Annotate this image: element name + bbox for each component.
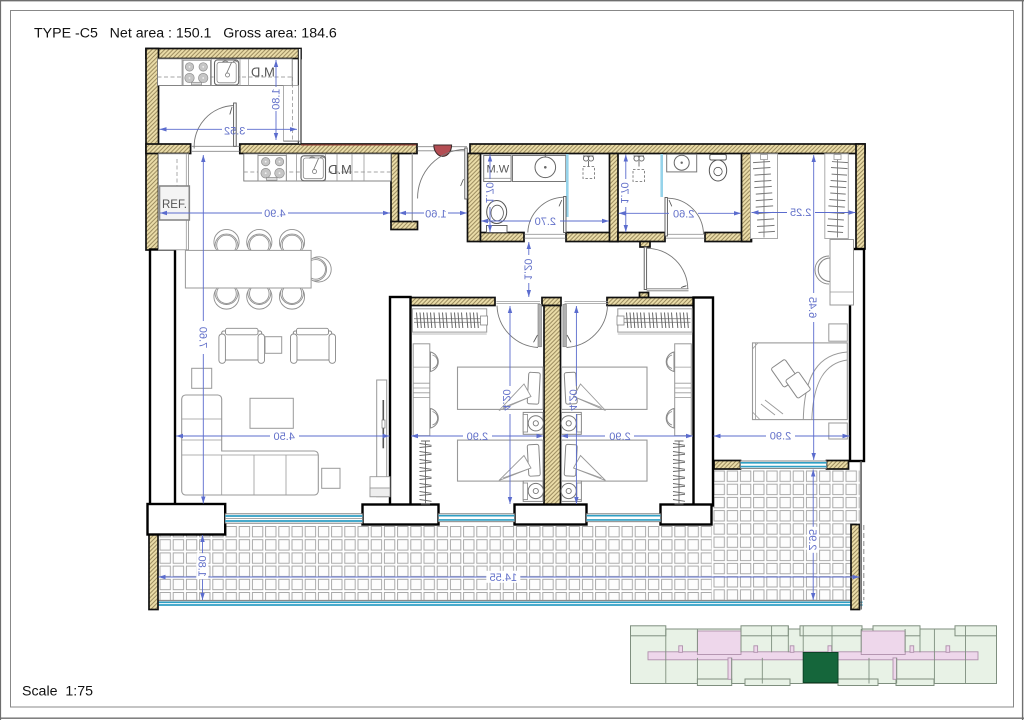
svg-text:4.20: 4.20 [566, 389, 578, 410]
svg-text:Scale 1:75: Scale 1:75 [22, 684, 93, 700]
svg-text:2.90: 2.90 [609, 431, 630, 443]
svg-text:14.55: 14.55 [490, 572, 518, 584]
svg-text:1.80: 1.80 [195, 555, 207, 576]
svg-text:4.50: 4.50 [273, 431, 294, 443]
svg-text:1.70: 1.70 [483, 182, 495, 203]
svg-text:1.60: 1.60 [425, 208, 446, 220]
svg-text:REF.: REF. [162, 199, 187, 211]
svg-text:M.D: M.D [328, 162, 352, 177]
svg-text:1.80: 1.80 [271, 88, 283, 109]
svg-text:4.90: 4.90 [264, 208, 285, 220]
svg-text:1.20: 1.20 [522, 259, 534, 280]
svg-text:2.70: 2.70 [535, 216, 556, 228]
svg-text:2.60: 2.60 [673, 209, 694, 221]
svg-text:6.45: 6.45 [806, 297, 818, 318]
svg-text:4.20: 4.20 [500, 389, 512, 410]
svg-text:3.52: 3.52 [224, 126, 245, 138]
svg-text:2.90: 2.90 [770, 431, 791, 443]
svg-text:1.70: 1.70 [618, 182, 630, 203]
svg-text:7.60: 7.60 [196, 327, 208, 348]
svg-text:2.25: 2.25 [790, 207, 811, 219]
svg-text:TYPE -C5 Net area : 150.1: TYPE -C5 Net area : 150.1 Gross area: 18… [34, 26, 337, 42]
svg-text:2.90: 2.90 [467, 431, 488, 443]
svg-text:2.95: 2.95 [806, 529, 818, 550]
svg-text:M.D: M.D [251, 65, 275, 80]
